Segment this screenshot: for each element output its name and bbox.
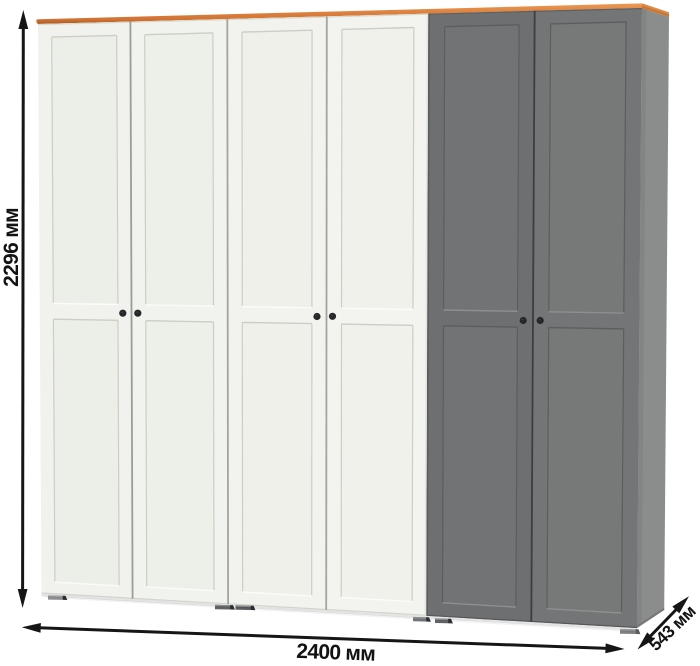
svg-text:2296 мм: 2296 мм bbox=[0, 208, 23, 287]
svg-text:2400 мм: 2400 мм bbox=[296, 640, 376, 666]
